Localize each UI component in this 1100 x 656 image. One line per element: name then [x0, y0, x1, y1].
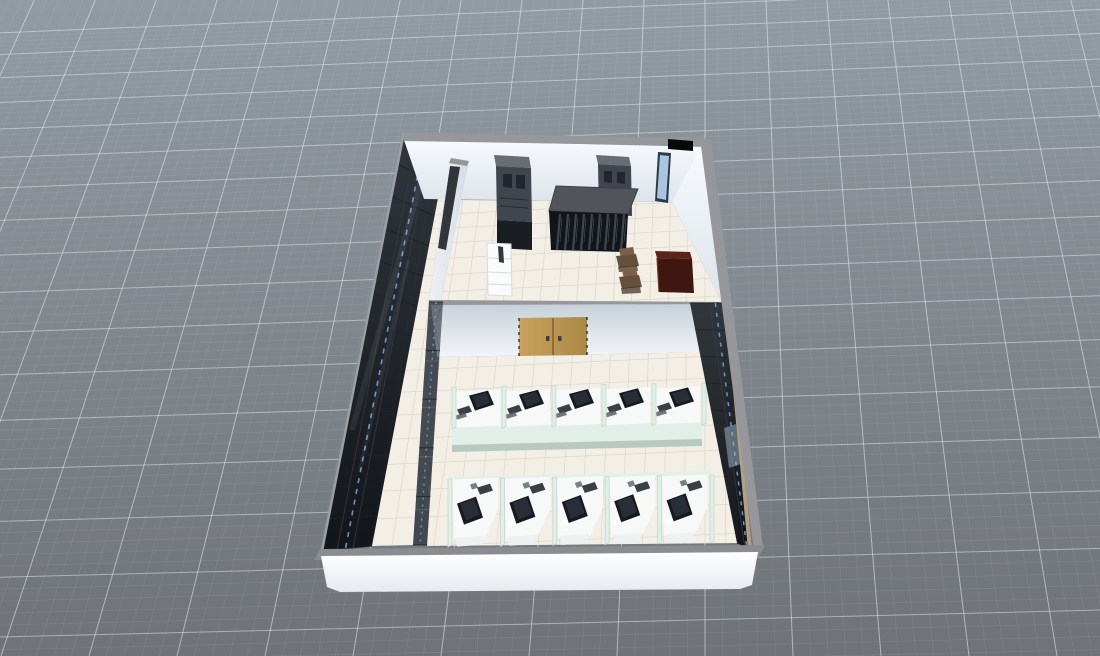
cabinet-top: [494, 155, 531, 168]
server-rack-row: [549, 186, 638, 252]
divider-panel: [448, 479, 452, 547]
divider-panel: [710, 475, 714, 543]
divider-panel: [702, 383, 706, 425]
rack-top: [549, 186, 638, 214]
3d-viewport[interactable]: [0, 0, 1100, 656]
cabinet-door-panel: [604, 171, 612, 183]
divider-panel: [553, 477, 557, 545]
divider-panel: [658, 476, 662, 544]
workstation: [555, 388, 600, 426]
red-cabinet-top: [655, 251, 692, 259]
divider-panel: [502, 386, 506, 428]
divider-panel: [452, 387, 456, 429]
white-side-table: [487, 243, 512, 296]
scene-canvas[interactable]: [0, 0, 1100, 656]
cabinet-door-panel: [617, 172, 625, 184]
front-wall-face: [321, 552, 758, 592]
workstation: [605, 387, 650, 425]
door-handle: [546, 336, 550, 341]
door-handle: [558, 336, 562, 341]
divider-panel: [605, 477, 609, 545]
equipment-cabinet-1: [494, 155, 532, 250]
divider-panel: [500, 478, 504, 546]
divider-panel: [552, 385, 556, 427]
workstation-row-upper: [452, 383, 706, 452]
red-cabinet-front: [657, 258, 694, 293]
divider-panel: [602, 385, 606, 427]
workstation: [455, 390, 500, 428]
glass-rung: [335, 486, 384, 487]
cabinet-door-panel: [503, 174, 512, 188]
cabinet-front: [496, 166, 532, 222]
double-wooden-door: [519, 317, 587, 356]
workstation: [505, 389, 550, 427]
workstation: [655, 386, 700, 424]
cabinet-door-panel: [516, 175, 525, 189]
divider-panel: [652, 384, 656, 426]
northeast-corner-opening: [668, 139, 693, 151]
dark-red-cabinet: [655, 251, 694, 293]
